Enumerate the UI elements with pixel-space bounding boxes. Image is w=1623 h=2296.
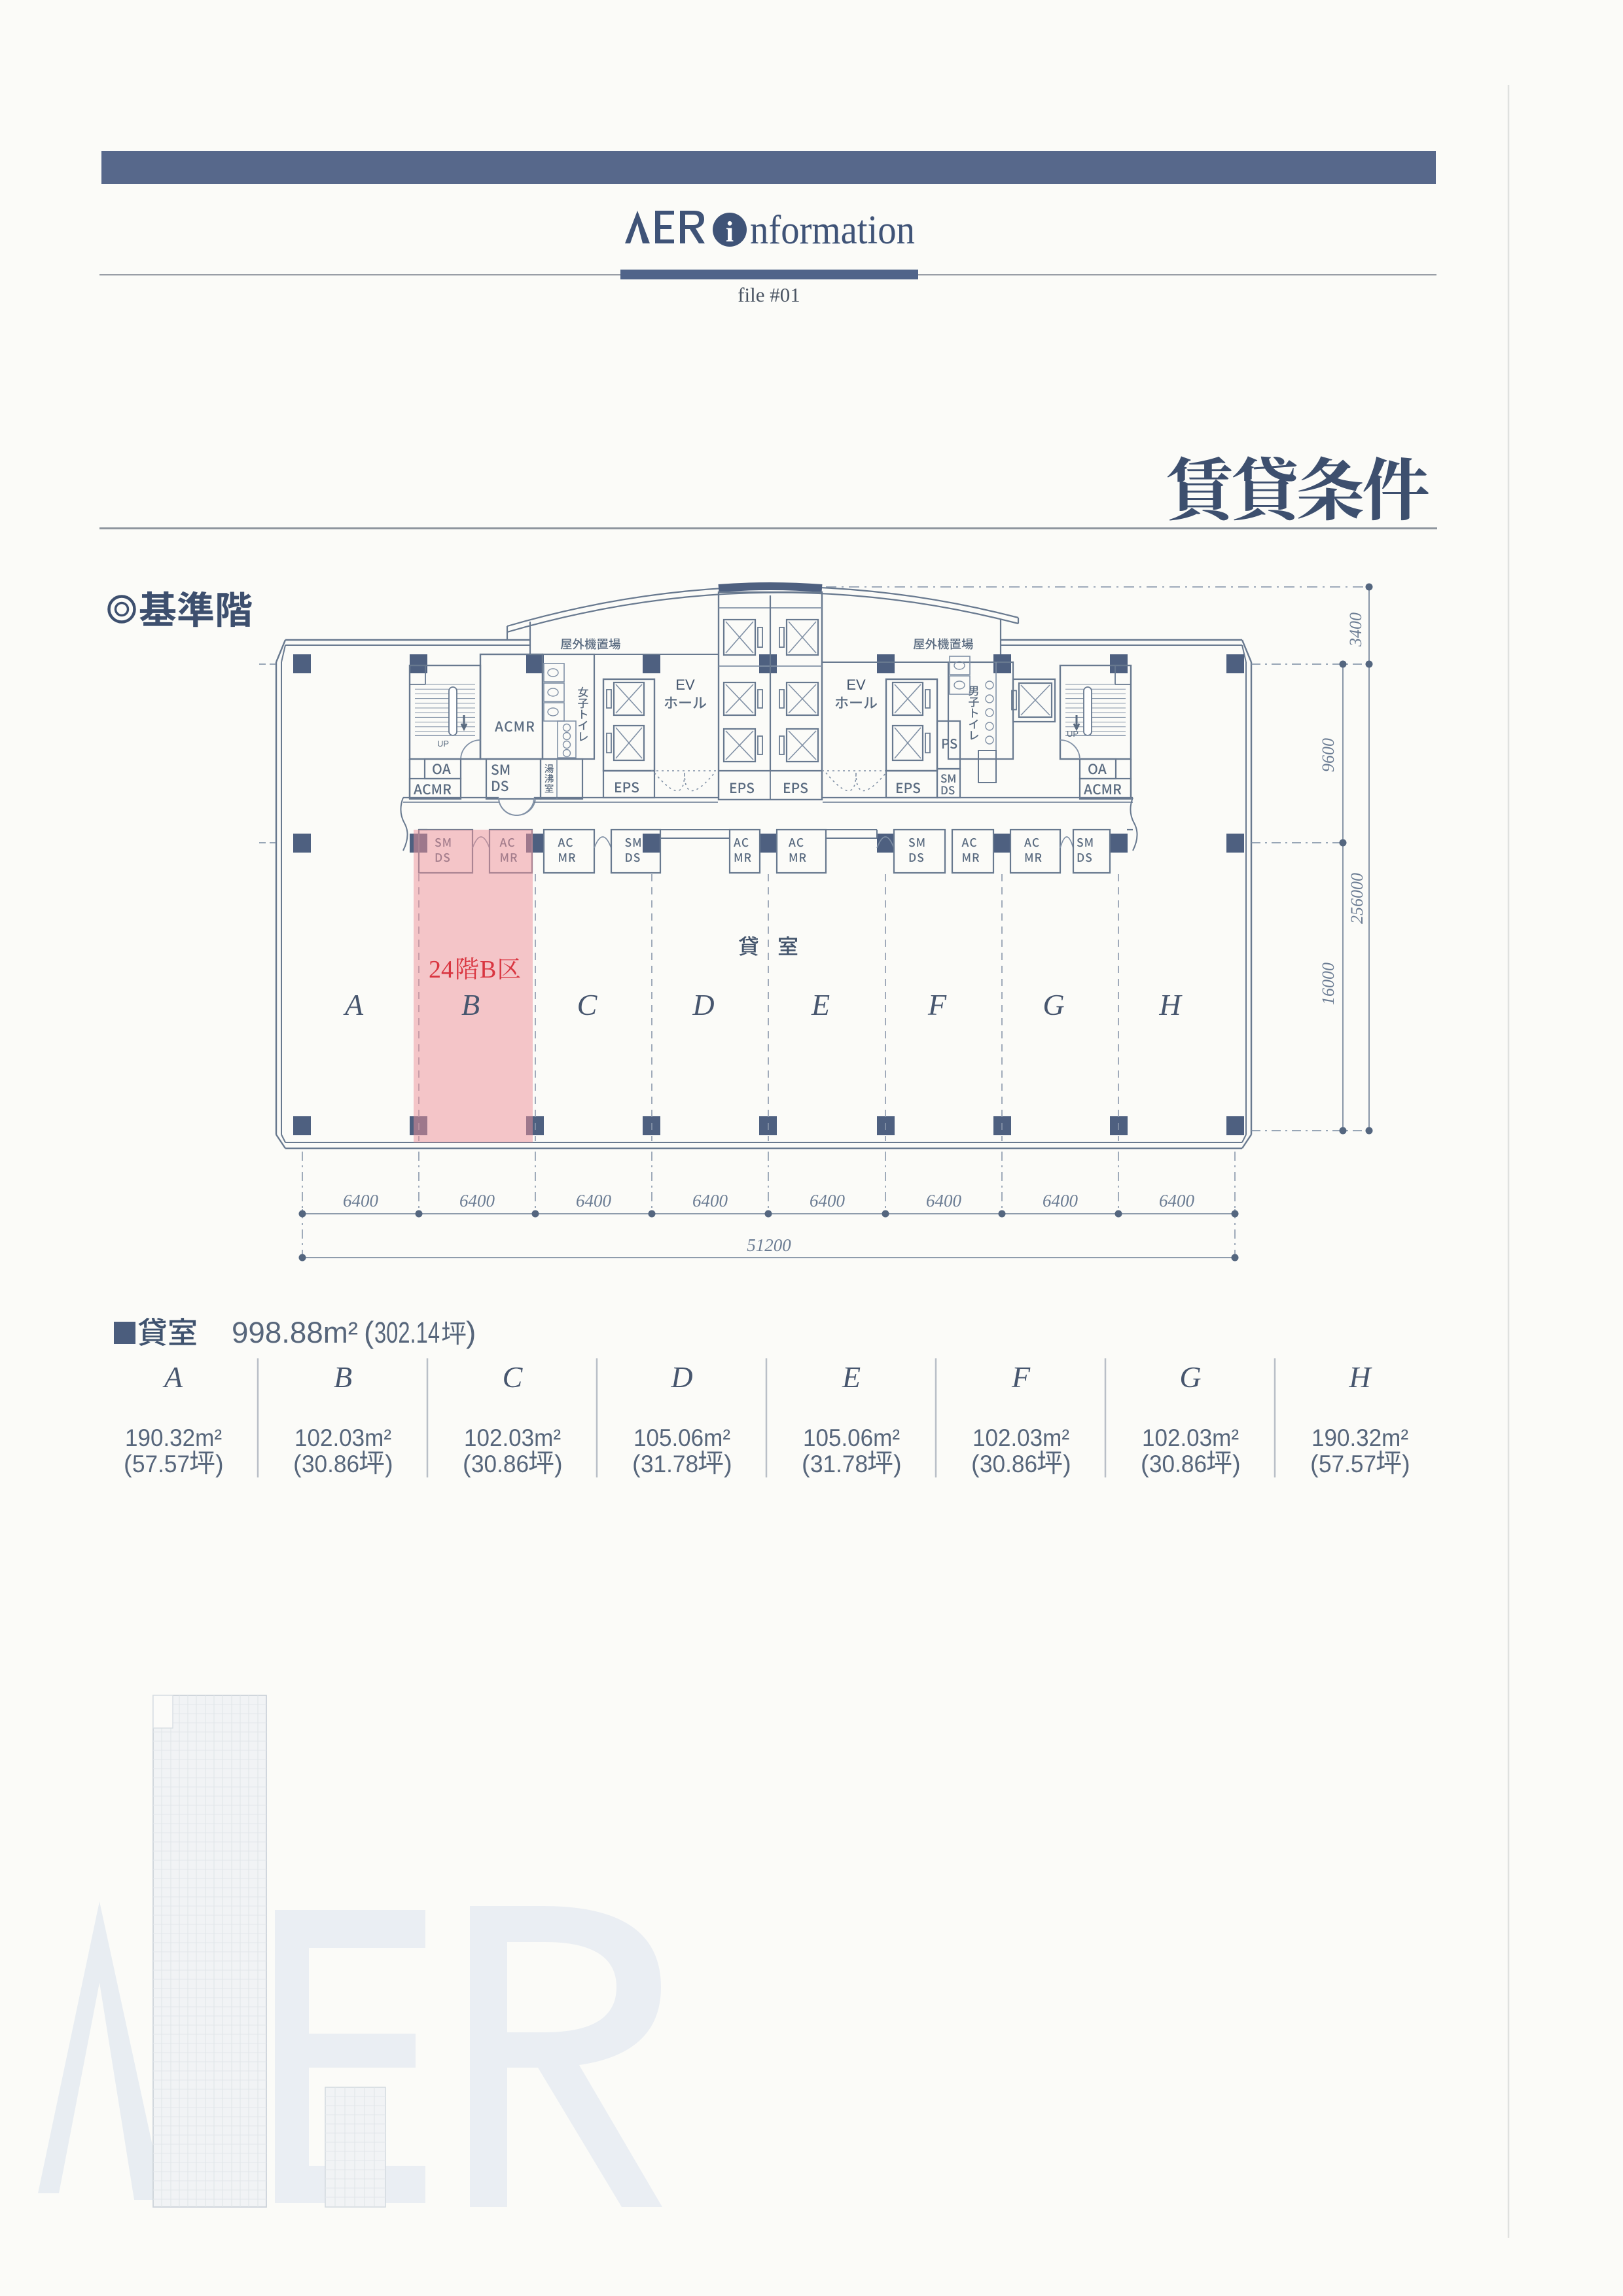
- svg-text:(: (: [1310, 1451, 1319, 1478]
- svg-text:(: (: [971, 1451, 980, 1478]
- svg-text:A: A: [162, 1360, 183, 1394]
- svg-text:UP: UP: [437, 739, 449, 749]
- svg-text:102.03m²: 102.03m²: [294, 1424, 391, 1451]
- svg-text:24: 24: [429, 956, 454, 983]
- svg-text:EV: EV: [846, 677, 866, 693]
- svg-text:D: D: [670, 1360, 692, 1394]
- svg-text:16000: 16000: [1319, 963, 1338, 1005]
- svg-text:6400: 6400: [810, 1191, 846, 1210]
- svg-text:190.32m²: 190.32m²: [125, 1424, 222, 1451]
- svg-text:102.03m²: 102.03m²: [464, 1424, 561, 1451]
- svg-text:): ): [1232, 1451, 1241, 1478]
- svg-text:(: (: [802, 1451, 810, 1478]
- svg-text:C: C: [577, 988, 598, 1021]
- svg-text:): ): [1402, 1451, 1410, 1478]
- svg-text:105.06m²: 105.06m²: [633, 1424, 730, 1451]
- svg-text:H: H: [1158, 988, 1183, 1021]
- svg-text:31.78: 31.78: [641, 1451, 698, 1477]
- svg-text:file #01: file #01: [738, 283, 800, 306]
- svg-text:): ): [466, 1315, 476, 1349]
- svg-text:UP: UP: [1067, 729, 1079, 739]
- svg-text:998.88m²: 998.88m²: [232, 1316, 358, 1349]
- svg-text:B: B: [480, 956, 496, 983]
- svg-text:30.86: 30.86: [980, 1451, 1037, 1477]
- svg-text:B: B: [334, 1360, 352, 1394]
- svg-text:6400: 6400: [926, 1191, 962, 1210]
- svg-text:(: (: [463, 1451, 471, 1478]
- svg-text:6400: 6400: [459, 1191, 495, 1210]
- svg-text:6400: 6400: [692, 1191, 728, 1210]
- svg-text:6400: 6400: [576, 1191, 612, 1210]
- svg-text:3400: 3400: [1346, 612, 1365, 647]
- svg-text:30.86: 30.86: [471, 1451, 529, 1477]
- svg-text:F: F: [1011, 1360, 1031, 1394]
- svg-text:31.78: 31.78: [810, 1451, 868, 1477]
- svg-text:H: H: [1348, 1360, 1372, 1394]
- svg-text:(: (: [1141, 1451, 1149, 1478]
- svg-text:102.03m²: 102.03m²: [1142, 1424, 1239, 1451]
- svg-text:C: C: [503, 1360, 524, 1394]
- svg-text:6400: 6400: [343, 1191, 379, 1210]
- svg-text:30.86: 30.86: [302, 1451, 359, 1477]
- svg-text:): ): [893, 1451, 902, 1478]
- svg-text:): ): [554, 1451, 563, 1478]
- svg-text:(: (: [124, 1451, 132, 1478]
- svg-text:): ): [724, 1451, 732, 1478]
- svg-text:D: D: [692, 988, 714, 1021]
- svg-text:(: (: [293, 1451, 302, 1478]
- svg-text:105.06m²: 105.06m²: [803, 1424, 900, 1451]
- svg-text:): ): [385, 1451, 393, 1478]
- svg-text:B: B: [461, 988, 480, 1021]
- svg-text:G: G: [1179, 1360, 1201, 1394]
- svg-text:302.14: 302.14: [374, 1316, 440, 1349]
- svg-text:): ): [215, 1451, 224, 1478]
- svg-text:G: G: [1043, 988, 1064, 1021]
- svg-text:30.86: 30.86: [1149, 1451, 1207, 1477]
- svg-text:EV: EV: [675, 677, 695, 693]
- svg-text:57.57: 57.57: [132, 1451, 190, 1477]
- svg-text:E: E: [842, 1360, 861, 1394]
- svg-text:A: A: [343, 988, 364, 1021]
- svg-text:): ): [1063, 1451, 1071, 1478]
- svg-text:(: (: [632, 1451, 641, 1478]
- svg-text:F: F: [927, 988, 947, 1021]
- svg-text:57.57: 57.57: [1319, 1451, 1376, 1477]
- svg-text:51200: 51200: [747, 1235, 791, 1255]
- svg-text:(: (: [364, 1315, 374, 1349]
- svg-text:E: E: [811, 988, 830, 1021]
- svg-text:i: i: [726, 216, 734, 248]
- svg-text:102.03m²: 102.03m²: [972, 1424, 1069, 1451]
- svg-text:nformation: nformation: [750, 208, 915, 253]
- svg-text:256000: 256000: [1347, 873, 1366, 924]
- svg-text:9600: 9600: [1319, 738, 1338, 772]
- svg-text:6400: 6400: [1043, 1191, 1079, 1210]
- svg-text:6400: 6400: [1159, 1191, 1195, 1210]
- svg-text:190.32m²: 190.32m²: [1311, 1424, 1408, 1451]
